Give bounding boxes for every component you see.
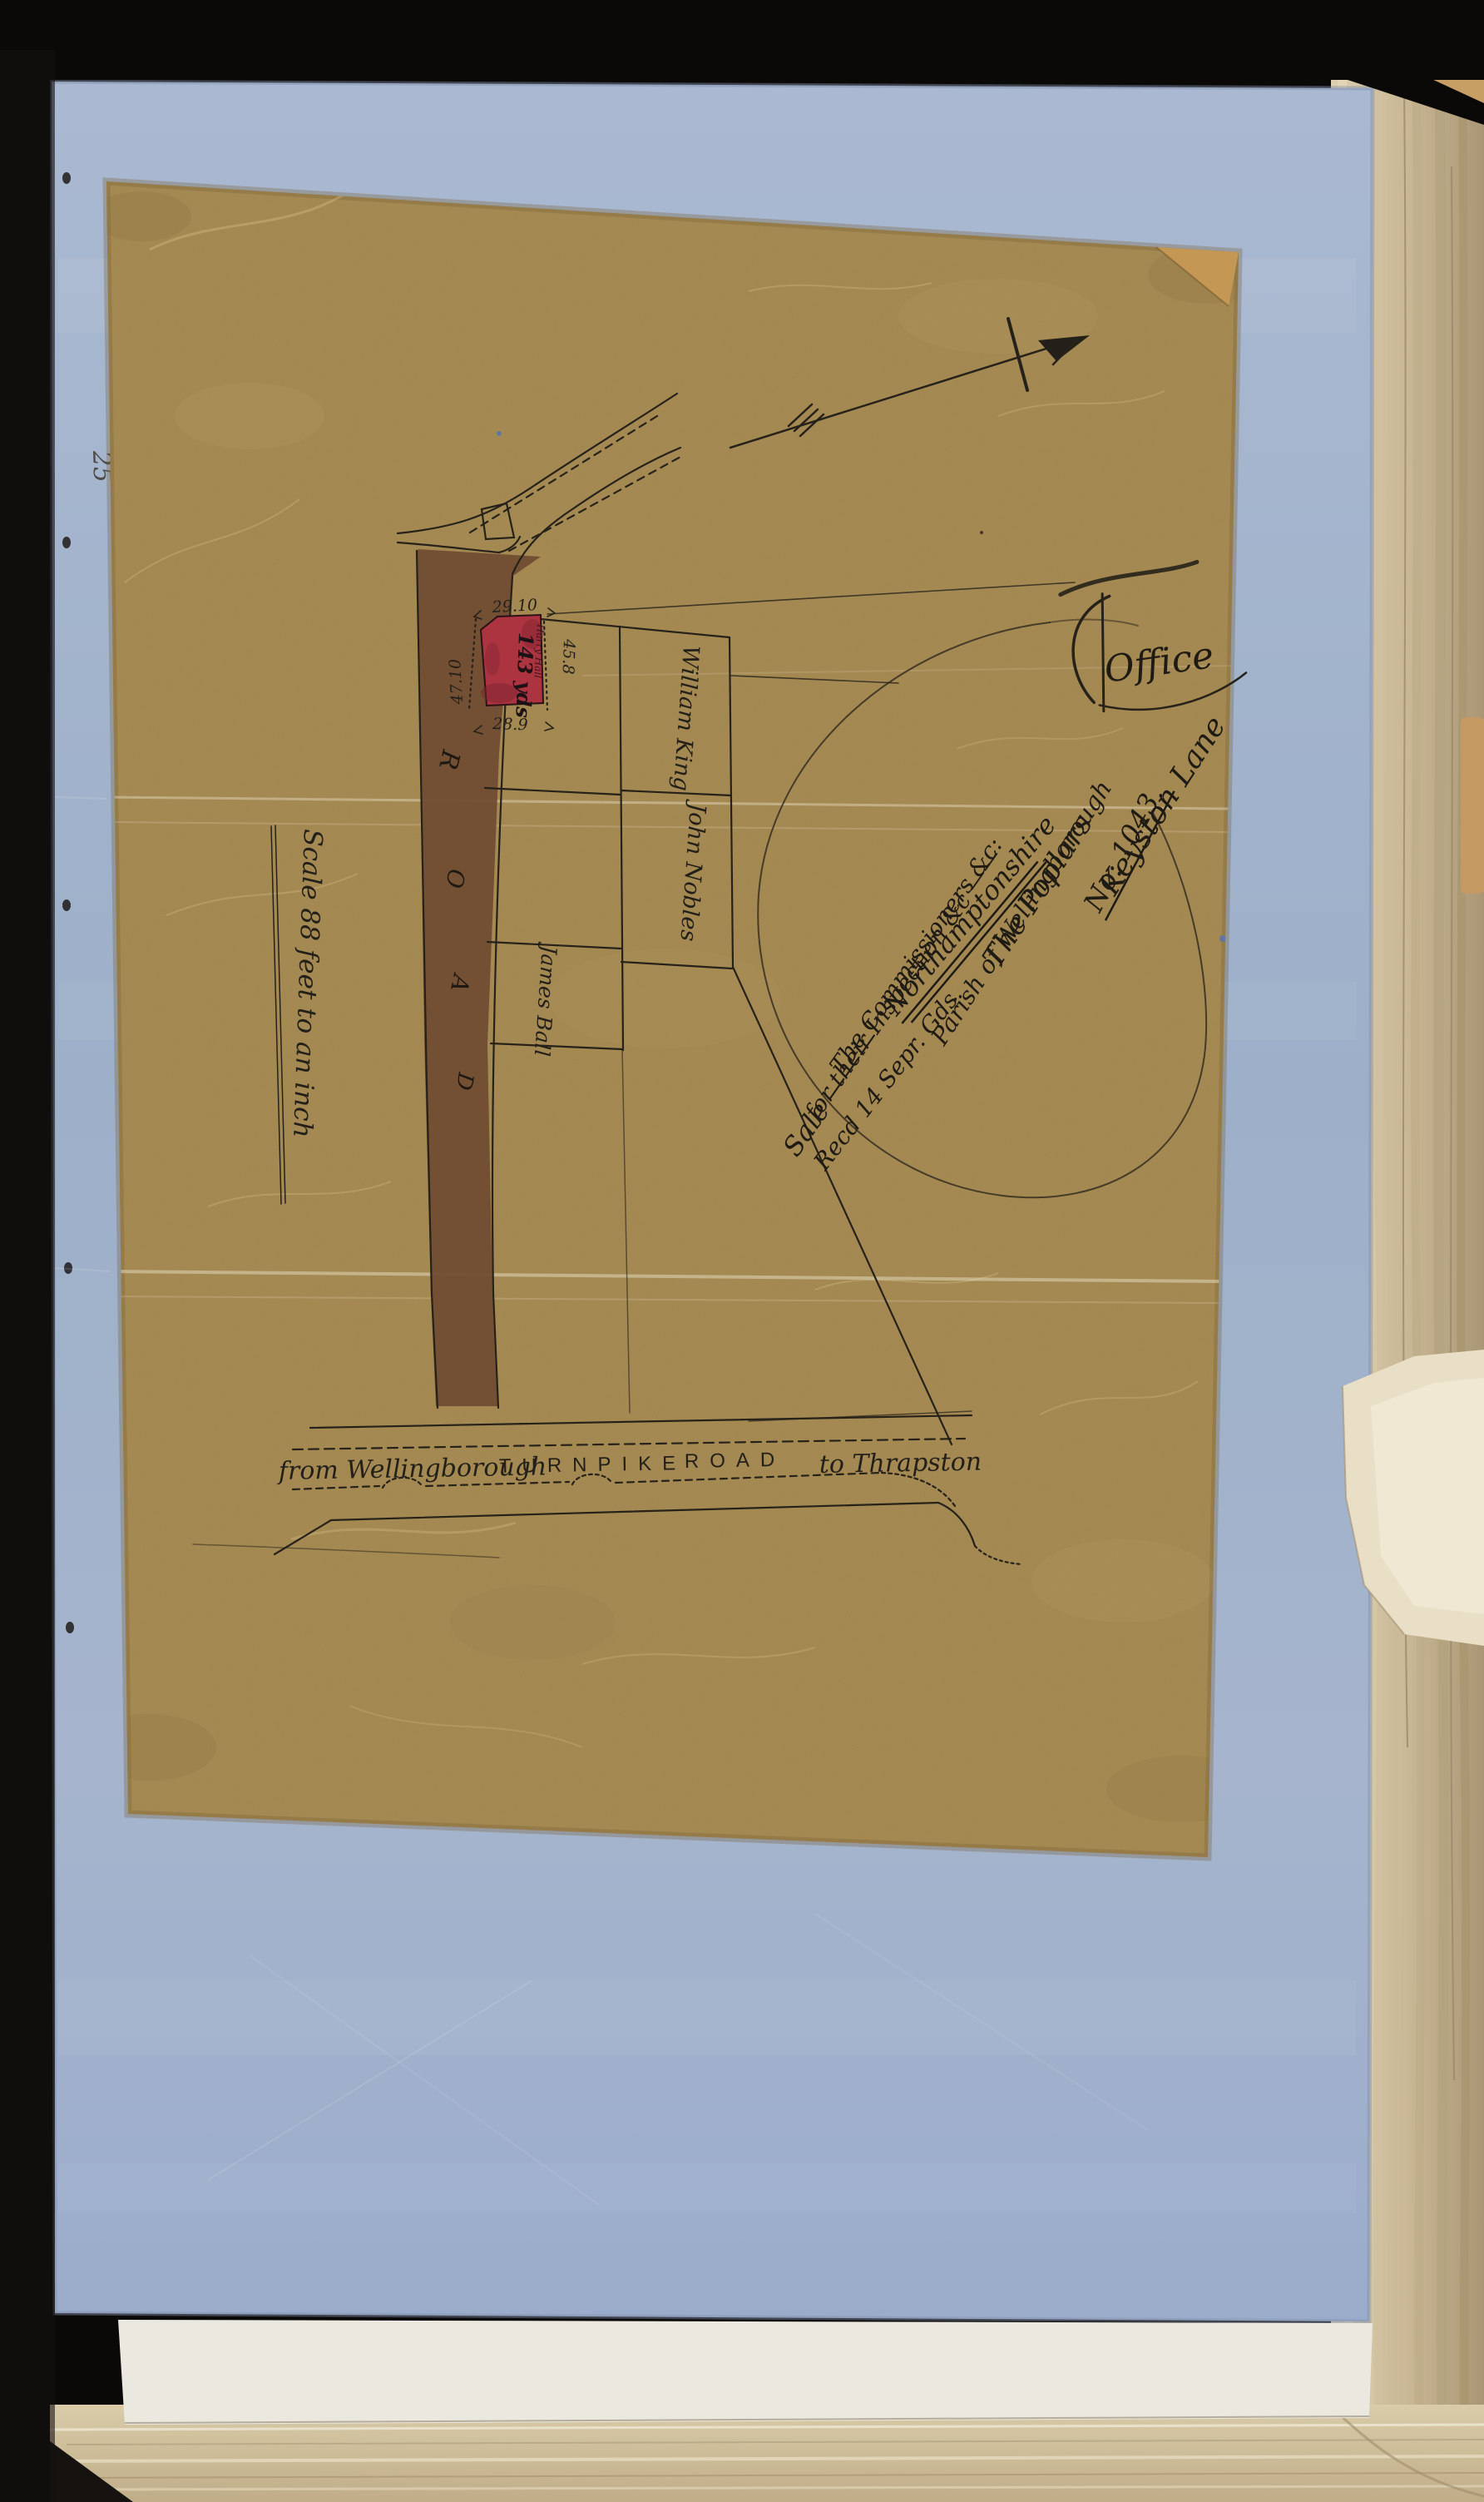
plan-sheet: [83, 181, 1264, 1857]
binding-hole: [62, 899, 71, 911]
binding-hole: [62, 537, 71, 548]
paper-speck: [980, 531, 983, 534]
page-tab: [1461, 717, 1484, 894]
paper-speck: [1219, 935, 1226, 942]
paper-speck: [497, 431, 502, 436]
dim-bottom: 28.9: [492, 715, 528, 734]
book-photograph: 25: [0, 0, 1484, 2502]
binding-hole: [66, 1622, 74, 1633]
paper-texture: [83, 181, 1264, 1857]
binding-hole: [62, 172, 71, 184]
dim-left: 47.10: [446, 658, 467, 705]
turnpike-to-label: to Thrapston: [819, 1448, 982, 1479]
binding-left-shade: [0, 50, 55, 2502]
turnpike-name-word2: ROAD: [685, 1449, 786, 1473]
dim-right: 45.8: [559, 638, 578, 675]
loose-white-sheet: [118, 2320, 1373, 2425]
dim-top: 29.10: [491, 596, 537, 617]
binding-top: [0, 0, 1484, 80]
turnpike-name-word1: TURNPIKE: [499, 1452, 687, 1478]
